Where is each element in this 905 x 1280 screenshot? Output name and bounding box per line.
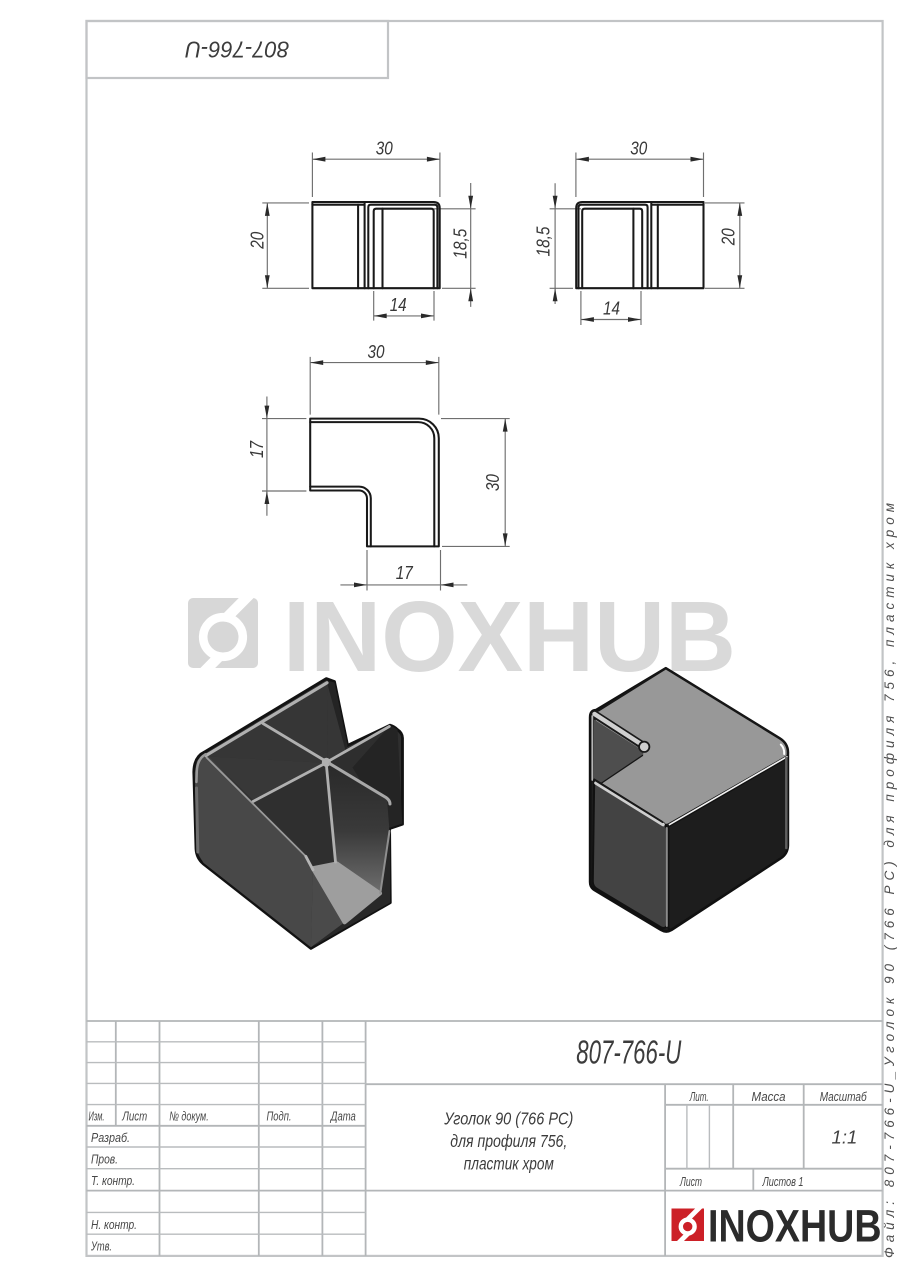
svg-text:18,5: 18,5 xyxy=(534,226,554,257)
svg-text:Лит.: Лит. xyxy=(689,1089,709,1104)
svg-text:Масса: Масса xyxy=(752,1089,786,1104)
svg-text:Т. контр.: Т. контр. xyxy=(91,1173,135,1188)
svg-text:807-766-U: 807-766-U xyxy=(185,37,289,63)
svg-text:Листов 1: Листов 1 xyxy=(762,1174,804,1189)
svg-text:Масштаб: Масштаб xyxy=(820,1089,868,1104)
svg-text:Подп.: Подп. xyxy=(267,1108,292,1123)
svg-text:1:1: 1:1 xyxy=(832,1126,858,1147)
svg-text:Н. контр.: Н. контр. xyxy=(91,1217,137,1232)
svg-text:14: 14 xyxy=(603,299,620,319)
svg-text:для профиля 756,: для профиля 756, xyxy=(450,1131,567,1151)
svg-text:№ докум.: № докум. xyxy=(169,1108,209,1123)
svg-text:Пров.: Пров. xyxy=(91,1152,118,1167)
svg-text:17: 17 xyxy=(247,440,267,458)
svg-text:30: 30 xyxy=(630,139,647,159)
svg-text:Лист: Лист xyxy=(121,1108,147,1123)
svg-text:Утв.: Утв. xyxy=(90,1239,112,1254)
svg-text:Изм.: Изм. xyxy=(89,1108,105,1123)
svg-text:18,5: 18,5 xyxy=(451,228,471,259)
svg-text:Лист: Лист xyxy=(679,1174,702,1189)
svg-text:807-766-U: 807-766-U xyxy=(576,1034,681,1071)
svg-text:INOXHUB: INOXHUB xyxy=(708,1200,882,1251)
svg-text:30: 30 xyxy=(483,474,503,491)
svg-text:Разраб.: Разраб. xyxy=(91,1130,130,1145)
svg-text:20: 20 xyxy=(718,228,738,246)
svg-text:пластик хром: пластик хром xyxy=(464,1153,554,1173)
svg-text:Уголок 90 (766 РС): Уголок 90 (766 РС) xyxy=(443,1108,573,1128)
svg-text:30: 30 xyxy=(376,139,393,159)
svg-text:Дата: Дата xyxy=(329,1108,355,1123)
svg-text:14: 14 xyxy=(390,295,407,315)
svg-text:17: 17 xyxy=(396,563,414,583)
svg-text:20: 20 xyxy=(247,232,267,250)
svg-text:30: 30 xyxy=(368,342,385,362)
